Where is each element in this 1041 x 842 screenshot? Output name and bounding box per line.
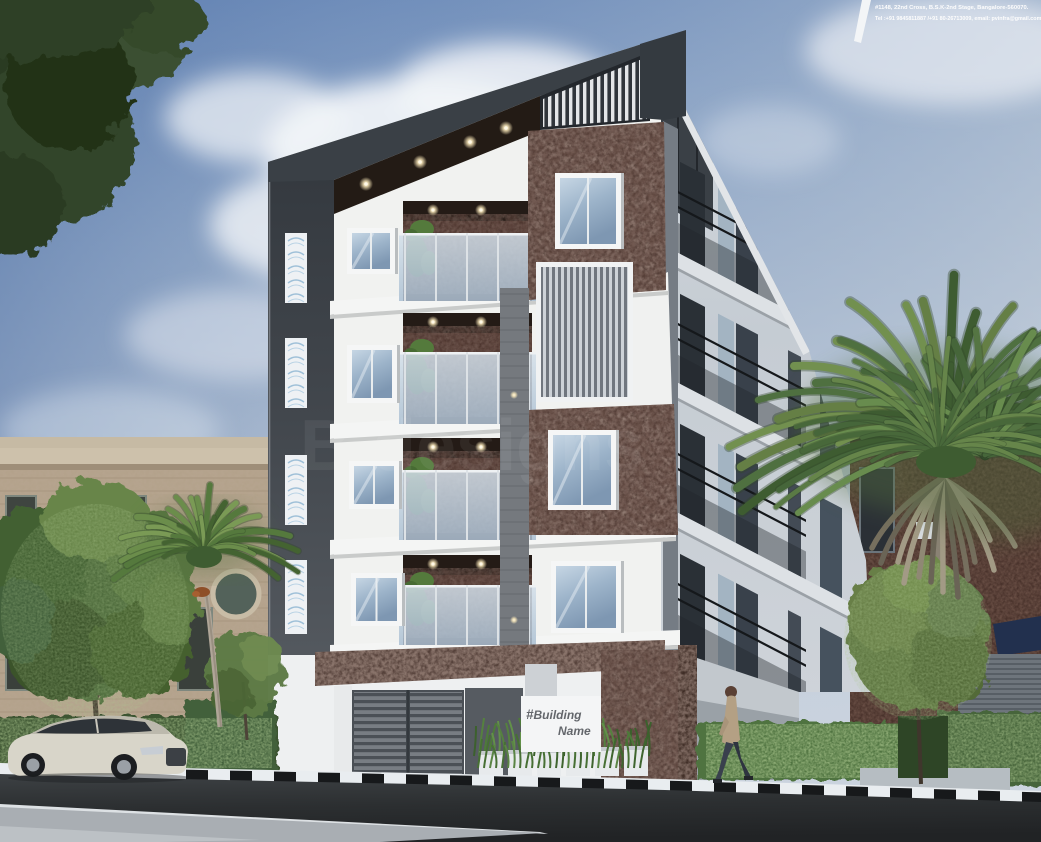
svg-text:#Building: #Building [526, 707, 582, 722]
svg-text:Tel :+91 9845811887 /+91 80-26: Tel :+91 9845811887 /+91 80-26713009, em… [875, 16, 1041, 22]
svg-text:B designs: B designs [300, 406, 644, 486]
svg-text:Name: Name [558, 724, 591, 738]
svg-text:#1148, 22nd Cross, B.S.K-2nd S: #1148, 22nd Cross, B.S.K-2nd Stage, Bang… [875, 5, 1029, 11]
